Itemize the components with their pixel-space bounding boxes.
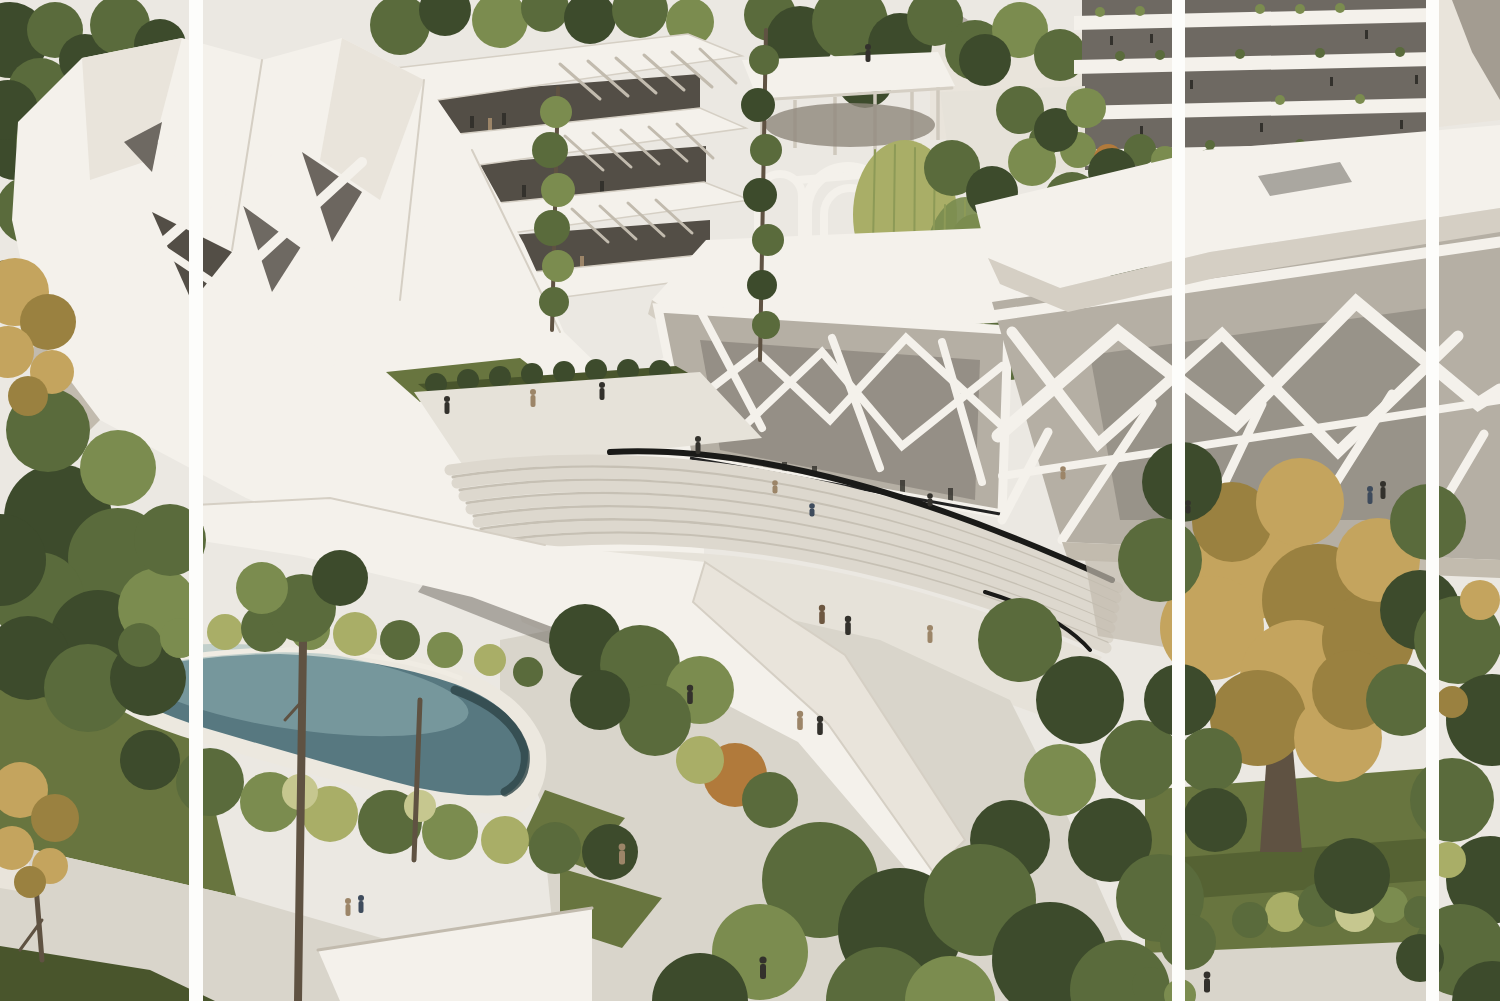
render-canvas [0, 0, 1500, 1001]
panel-divider-1 [189, 0, 203, 1001]
person-on-canopy [865, 44, 871, 62]
architectural-render [0, 0, 1500, 1001]
panel-divider-3 [1426, 0, 1439, 1001]
panel-divider-2 [1172, 0, 1185, 1001]
